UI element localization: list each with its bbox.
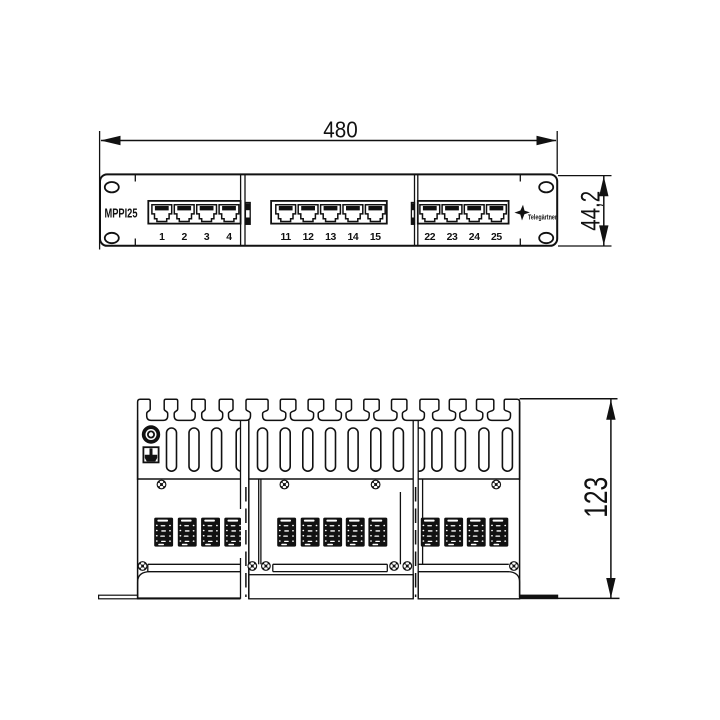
svg-text:MPPI25: MPPI25 (105, 206, 138, 221)
svg-text:15: 15 (370, 232, 381, 243)
svg-text:2: 2 (181, 232, 187, 243)
svg-text:14: 14 (347, 232, 358, 243)
svg-text:1: 1 (159, 232, 165, 243)
svg-text:Telegärtner: Telegärtner (528, 215, 557, 222)
svg-text:22: 22 (424, 232, 435, 243)
svg-text:44,2: 44,2 (576, 191, 606, 231)
svg-text:25: 25 (491, 232, 502, 243)
svg-text:24: 24 (469, 232, 480, 243)
svg-text:13: 13 (325, 232, 336, 243)
svg-text:11: 11 (281, 232, 292, 243)
svg-text:123: 123 (578, 477, 614, 518)
svg-text:23: 23 (447, 232, 458, 243)
svg-text:3: 3 (204, 232, 210, 243)
svg-text:4: 4 (226, 232, 232, 243)
svg-text:12: 12 (303, 232, 314, 243)
svg-text:480: 480 (323, 117, 358, 143)
